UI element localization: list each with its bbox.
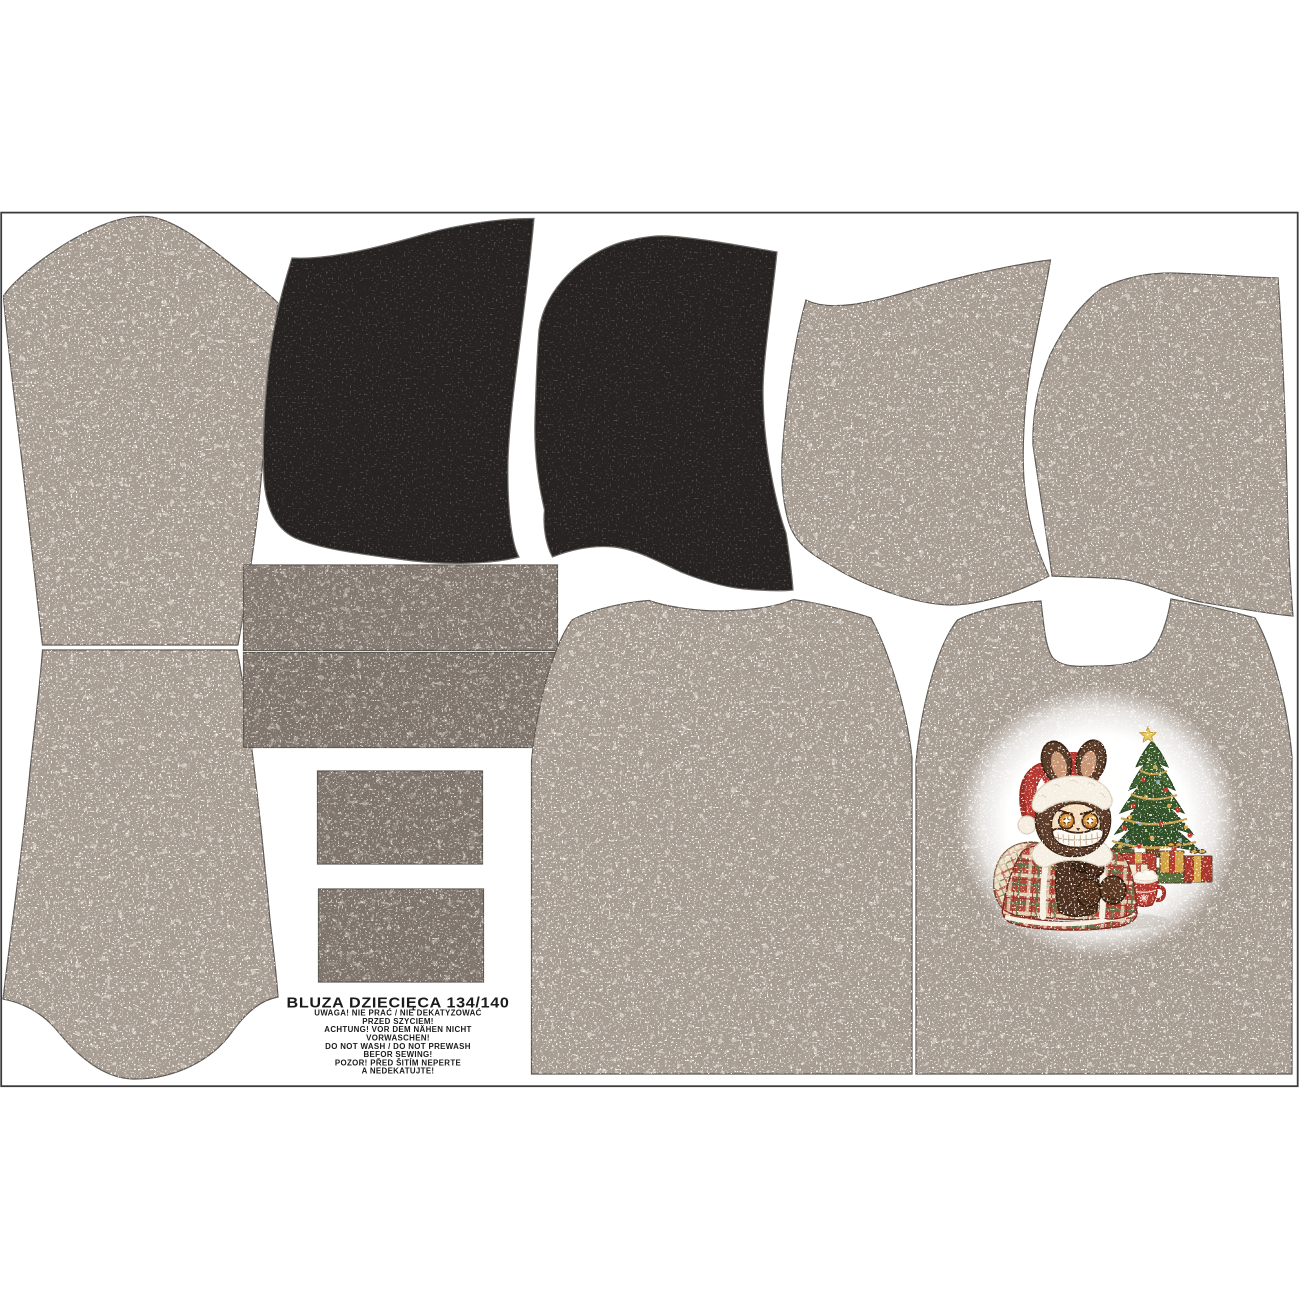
svg-text:A NEDEKATUJTE!: A NEDEKATUJTE! — [362, 1067, 435, 1076]
